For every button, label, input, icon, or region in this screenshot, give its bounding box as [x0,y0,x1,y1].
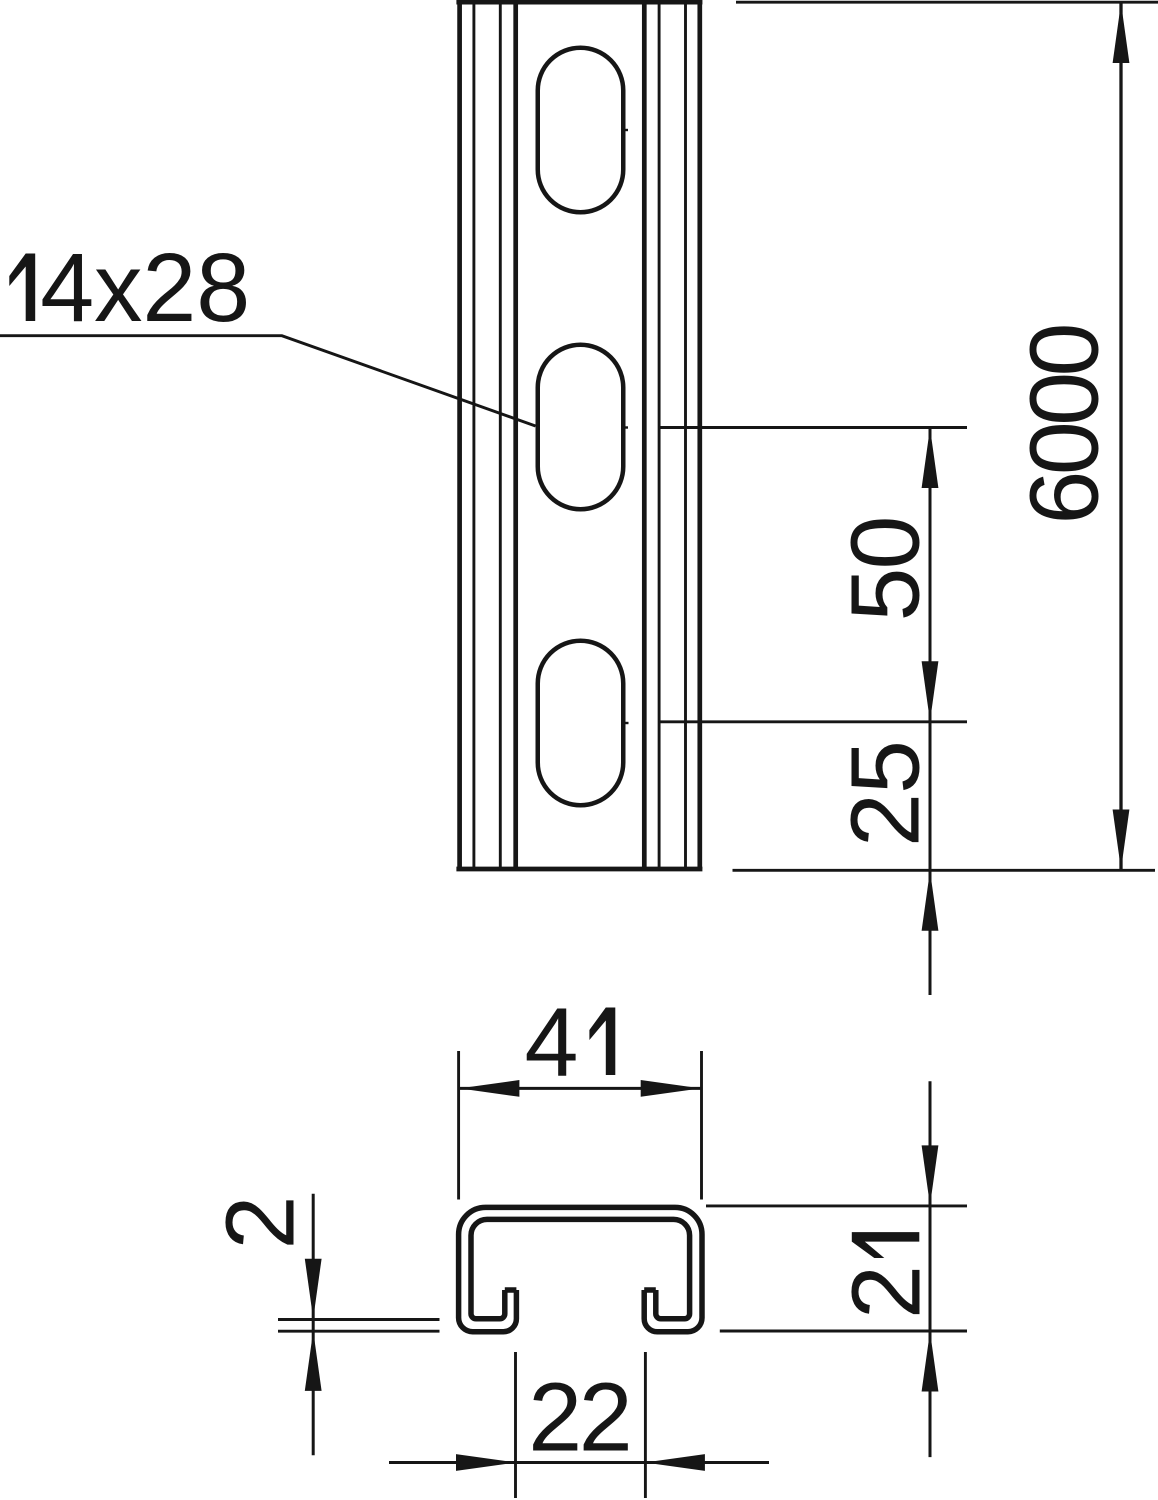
svg-text:6000: 6000 [1009,323,1118,525]
svg-text:2: 2 [831,1265,940,1319]
svg-text:4x28: 4x28 [40,233,250,342]
svg-text:2: 2 [206,1196,315,1250]
svg-text:25: 25 [830,740,939,847]
svg-text:50: 50 [831,516,940,622]
svg-text:22: 22 [528,1362,633,1471]
svg-text:4: 4 [525,987,579,1096]
